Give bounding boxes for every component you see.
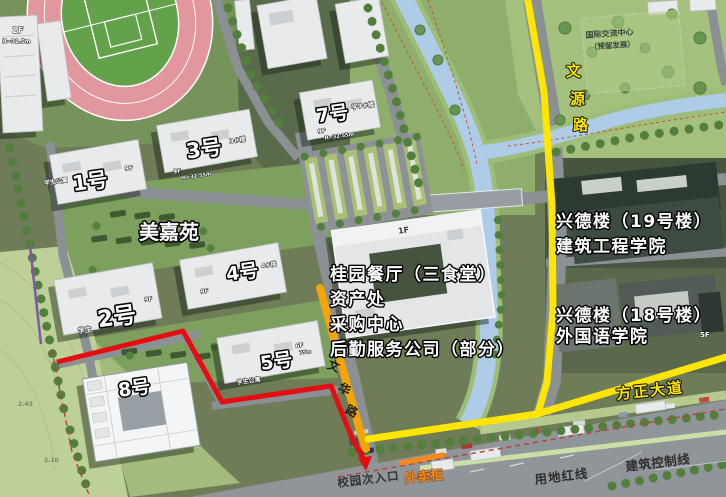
- label-elevation-1: 2.43: [18, 401, 33, 408]
- label-wenyuan-char3: 路: [573, 116, 589, 134]
- label-b18-floors: 5F: [700, 331, 710, 339]
- label-meijiayuan: 美嘉苑: [139, 220, 199, 244]
- label-2f-height: H=32.5m: [2, 39, 31, 45]
- label-building-2: 2号: [96, 302, 138, 333]
- intl-center-reserved-plot: [581, 10, 685, 94]
- label-building-5: 5号: [259, 349, 294, 375]
- campus-map: 2F H=32.5m 学生公寓 1号 9F 3号 3#楼 9F H=32.55m…: [0, 0, 726, 497]
- label-building-19: 兴德楼（19号楼）: [556, 211, 712, 232]
- label-building-4: 4号: [225, 260, 260, 286]
- label-dining-line3: 采购中心: [329, 314, 404, 335]
- label-elevation-2: 2.10: [44, 457, 59, 464]
- label-dining-line2: 资产处: [330, 289, 386, 310]
- label-wenyuan-char1: 文: [566, 62, 582, 80]
- label-building-1: 1号: [71, 167, 110, 196]
- label-building-19-dept: 建筑工程学院: [556, 236, 667, 257]
- campus-map-screenshot: 2F H=32.5m 学生公寓 1号 9F 3号 3#楼 9F H=32.55m…: [0, 0, 726, 497]
- label-b5-floors: 6F: [295, 342, 304, 350]
- building-top-a: [250, 0, 328, 76]
- label-building-18-dept: 外国语学院: [556, 326, 649, 347]
- label-b7-floors: 9F: [317, 127, 326, 135]
- label-dining-line1: 桂园餐厅（三食堂）: [329, 264, 497, 285]
- label-2f: 2F: [12, 26, 24, 36]
- label-building-3: 3号: [185, 135, 224, 164]
- label-b3-floors: 9F: [173, 168, 182, 176]
- label-building-7: 7号: [315, 101, 350, 127]
- label-b4-floors: 9F: [200, 288, 209, 296]
- label-dining-line4: 后勤服务公司（部分）: [330, 339, 515, 360]
- label-b2-floors: 9F: [144, 296, 153, 304]
- label-building-18: 兴德楼（18号楼）: [556, 305, 712, 326]
- label-b1-floors: 9F: [124, 165, 133, 173]
- label-wenyuan-char2: 源: [570, 90, 585, 108]
- label-building-8: 8号: [117, 376, 152, 402]
- label-dining-floors: 1F: [398, 225, 410, 235]
